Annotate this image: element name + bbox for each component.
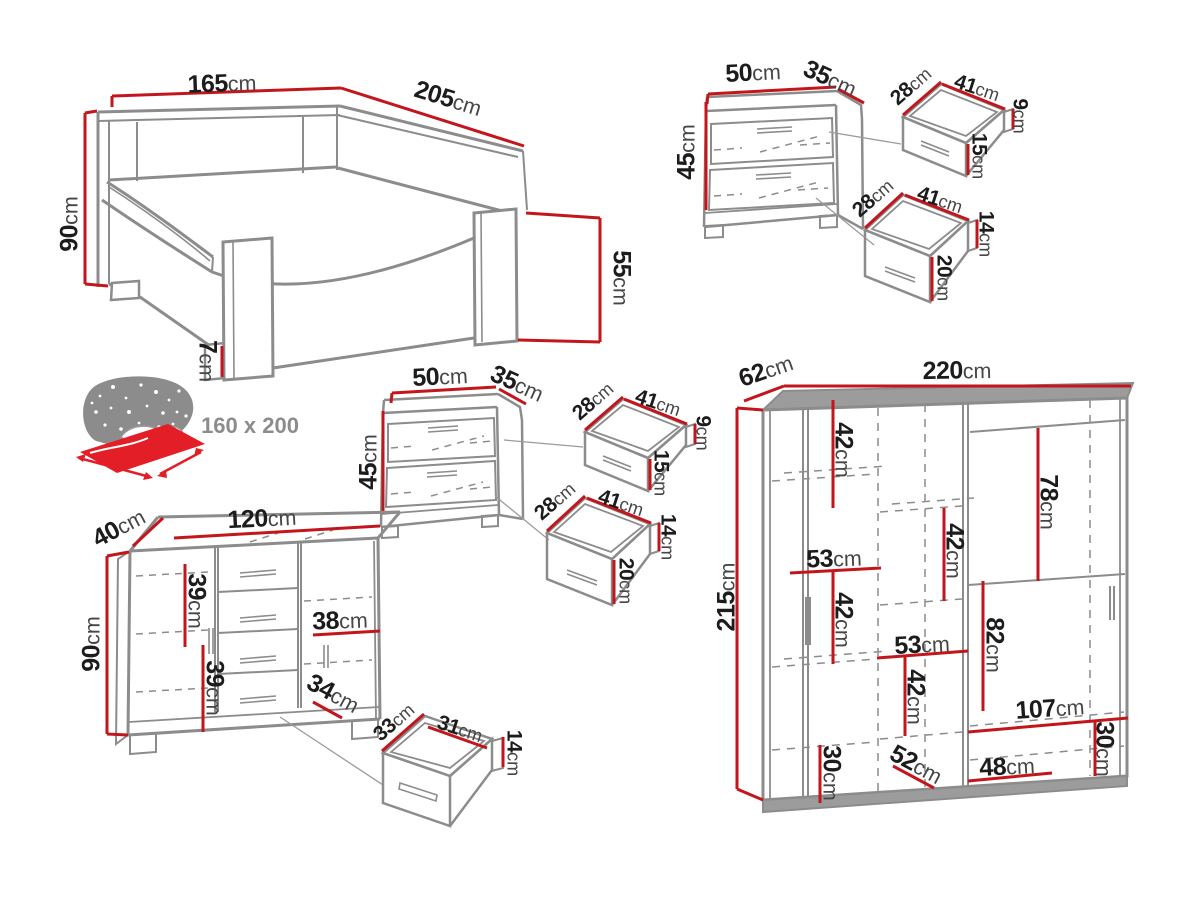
bed-headboard-height-dim: 90cm	[58, 196, 83, 251]
nightstand-mid-drawer2-back-height-dim: 14cm	[658, 514, 679, 560]
wardrobe-dimension-lines	[737, 386, 1131, 803]
nightstand-mid-dimension-lines	[383, 387, 526, 514]
nightstand-top-width-dim: 50cm	[725, 59, 782, 87]
bed-drawing	[98, 106, 527, 380]
nightstand-top-drawer1-front-height-dim: 15cm	[969, 133, 990, 179]
nightstand-mid-height-dim: 45cm	[357, 434, 382, 489]
bed-leg-height-dim: 7cm	[195, 340, 220, 382]
mattress-icon	[76, 376, 205, 480]
furniture-dimensions-diagram: 165cm 205cm 90cm 55cm 7cm 160 x 200 50cm…	[0, 0, 1200, 899]
wardrobe-shelf-mid-lower-dim: 42cm	[903, 669, 928, 724]
wardrobe-mid-section-width-dim: 53cm	[894, 631, 951, 659]
dresser-height-dim: 90cm	[80, 616, 105, 671]
nightstand-mid-drawer2-front-height-dim: 20cm	[616, 558, 637, 604]
nightstand-mid-width-dim: 50cm	[412, 363, 469, 391]
dresser-width-dim: 120cm	[227, 505, 297, 534]
wardrobe-bottom-left-height-dim: 30cm	[819, 745, 844, 800]
wardrobe-left-section-width-dim: 53cm	[806, 546, 862, 573]
nightstand-top-drawer2-front-height-dim: 20cm	[934, 255, 955, 301]
nightstand-top-height-dim: 45cm	[675, 124, 700, 179]
dresser-door-width-dim: 38cm	[312, 608, 368, 635]
wardrobe-shelf-left-lower-dim: 42cm	[831, 592, 856, 647]
mattress-size-label: 160 x 200	[201, 415, 299, 437]
wardrobe-hanging-right-top-dim: 78cm	[1036, 474, 1061, 529]
dresser-drawing	[116, 512, 400, 785]
nightstand-top-drawer2-back-height-dim: 14cm	[976, 211, 997, 257]
nightstand-top-drawer1-back-height-dim: 9cm	[1010, 98, 1031, 133]
wardrobe-shelf-top-dim: 42cm	[831, 422, 856, 477]
wardrobe-bottom-mid-width-dim: 48cm	[979, 753, 1036, 781]
wardrobe-width-dim: 220cm	[922, 358, 991, 384]
dresser-upper-shelf-dim: 39cm	[184, 573, 209, 628]
dresser-drawer-height-dim: 14cm	[504, 730, 525, 776]
nightstand-mid-drawer1-front-height-dim: 15cm	[651, 450, 672, 496]
wardrobe-shelf-mid-dim: 42cm	[942, 523, 967, 578]
nightstand-mid-drawer1-back-height-dim: 9cm	[693, 415, 714, 450]
bed-width-dim: 165cm	[187, 70, 257, 97]
wardrobe-bottom-right-width-dim: 107cm	[1015, 694, 1085, 724]
dresser-lower-shelf-dim: 39cm	[202, 660, 227, 715]
bed-dimension-lines	[85, 88, 600, 377]
bed-footboard-height-dim: 55cm	[609, 250, 634, 305]
wardrobe-bottom-right-height-dim: 30cm	[1092, 721, 1117, 776]
wardrobe-height-dim: 215cm	[715, 563, 740, 632]
wardrobe-hanging-right-mid-dim: 82cm	[982, 617, 1007, 672]
